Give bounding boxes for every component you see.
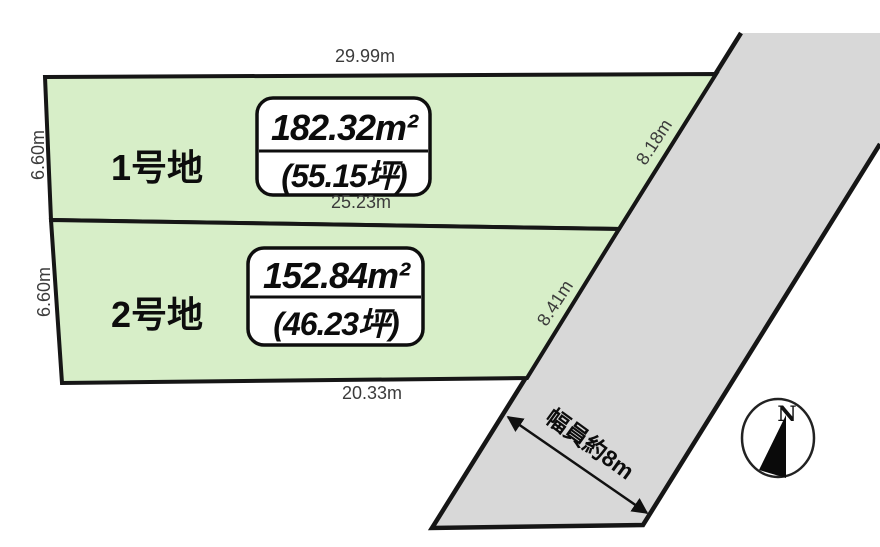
dim-parcel1-left: 6.60m [28, 130, 48, 180]
plot-diagram: 幅員約8m 182.32m² (55.15坪) 152.84m² (46.23坪… [0, 0, 880, 547]
parcel-2-name: 2号地 [111, 294, 203, 335]
area-box-2: 152.84m² (46.23坪) [248, 248, 423, 345]
parcel-1-name: 1号地 [111, 147, 203, 188]
dim-parcel1-top: 29.99m [335, 46, 395, 66]
compass: N [742, 399, 814, 478]
parcel-1-area-m2: 182.32m² [271, 107, 419, 148]
dim-parcel2-bottom: 20.33m [342, 383, 402, 403]
parcel-2-area-tsubo: (46.23坪) [273, 306, 399, 342]
compass-north-label: N [777, 401, 796, 426]
dim-parcel1-bottom: 25.23m [331, 192, 391, 212]
parcel-1-area-tsubo: (55.15坪) [281, 158, 407, 194]
diagram-canvas: 幅員約8m 182.32m² (55.15坪) 152.84m² (46.23坪… [0, 0, 880, 547]
dim-parcel2-left: 6.60m [34, 267, 54, 317]
parcel-2-area-m2: 152.84m² [263, 255, 411, 296]
area-box-1: 182.32m² (55.15坪) [257, 98, 430, 195]
